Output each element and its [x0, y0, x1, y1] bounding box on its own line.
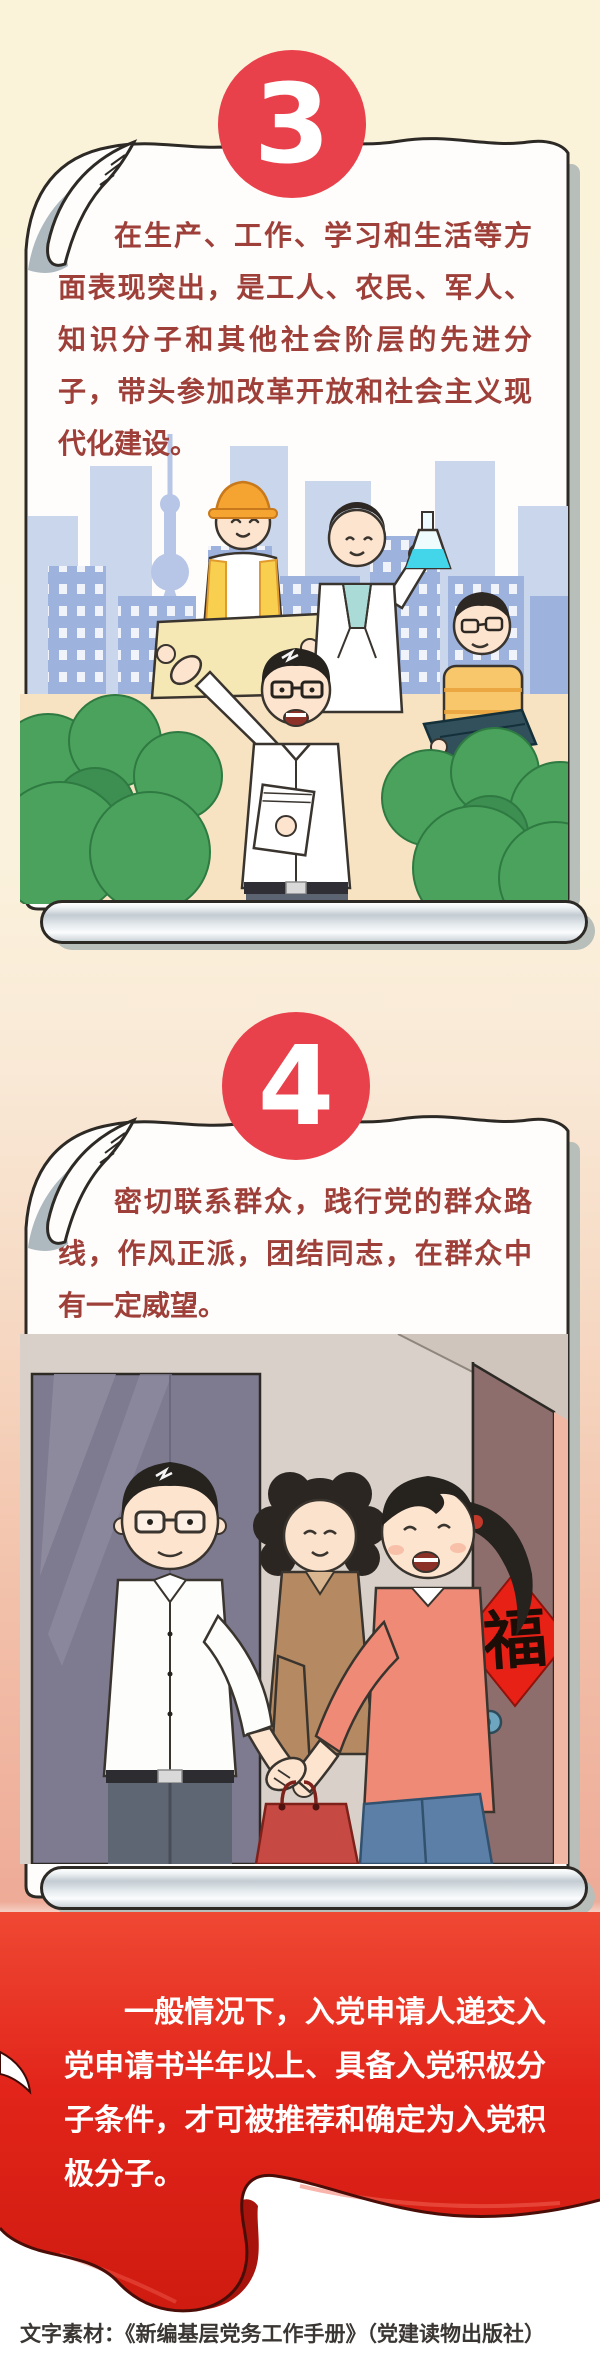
section-number-badge-4: 4 [222, 1012, 370, 1160]
scroll-roll-bottom-3 [40, 900, 588, 944]
page-curl-corner-icon [14, 132, 164, 282]
city-workers-illustration [20, 426, 568, 904]
page-curl-corner-icon [14, 1110, 164, 1260]
home-visit-illustration: 福 [20, 1334, 568, 1864]
banner-paragraph: 一般情况下，入党申请人递交入党申请书半年以上、具备入党积极分子条件，才可被推荐和… [64, 1986, 546, 2202]
section-number-4: 4 [258, 1031, 335, 1141]
door-fortune-sign: 福 [480, 1602, 550, 1678]
section-number-3: 3 [254, 69, 331, 179]
scroll-card-4: 密切联系群众，践行党的群众路线，作风正派，团结同志，在群众中有一定威望。 [16, 1108, 582, 1914]
scroll-roll-bottom-4 [40, 1866, 588, 1910]
poster: 3 在生产、工作、学习和生活等方面表现突出，是工人、农民、军人、知识分子和其他社… [0, 0, 600, 2377]
section-number-badge-3: 3 [218, 50, 366, 198]
scroll-card-3: 在生产、工作、学习和生活等方面表现突出，是工人、农民、军人、知识分子和其他社会阶… [16, 130, 582, 926]
